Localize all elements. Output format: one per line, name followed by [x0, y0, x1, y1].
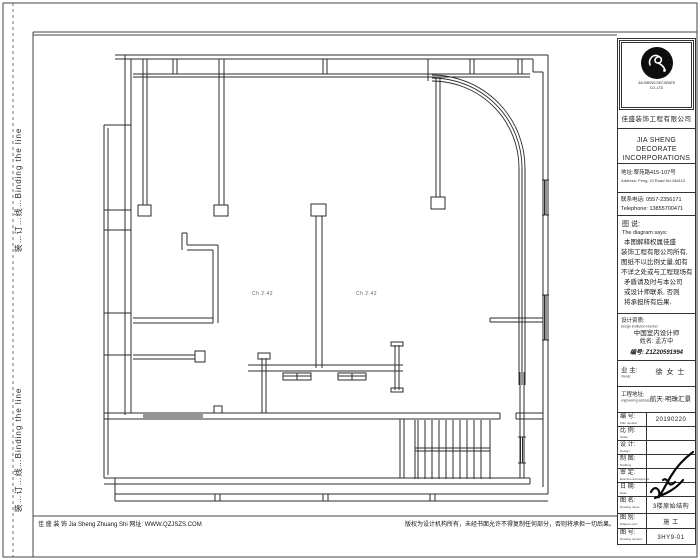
credential-name: 姓名: 孟方中 — [618, 338, 695, 347]
row-label-en: Date: — [620, 492, 640, 495]
logo-tagline-1: JIA SHENG DECORATE — [627, 80, 686, 84]
curved-wall — [432, 75, 525, 385]
notes-line: 或设计师联系, 否则 — [624, 288, 695, 298]
room-label-ch: Ch 2.42 — [252, 291, 273, 297]
row-label-en: Drafting: — [620, 464, 640, 467]
company-name-cn: 佳盛装饰工程有限公司 — [618, 113, 695, 123]
credential-org: 中国室内设计师 — [618, 329, 695, 338]
row-value — [647, 427, 695, 440]
notes-line: 图纸不以比例丈量,如有 — [621, 258, 695, 268]
notes-line: 本图解释权属佳盛 — [624, 238, 695, 248]
table-row: 图 别: Diagram sort: 施 工 — [618, 514, 695, 529]
floor-plan-linework — [0, 0, 700, 560]
notes-line: 将承担所有后果. — [624, 298, 695, 308]
phone-en: Telephone: 13855700471 — [621, 206, 695, 212]
binding-line-text-lower: 装…订…线…Binding the line — [13, 365, 27, 535]
notes-title-cn: 图 说: — [622, 219, 695, 229]
designer-signature — [645, 446, 699, 506]
table-row: 图 号: Drawing number: 3HY9-01 — [618, 529, 695, 544]
table-row: 比 例: Scale: — [618, 427, 695, 441]
owner-row: 业 主: Owner: 徐 女 士 — [618, 361, 695, 387]
plan-walls — [104, 55, 549, 501]
logo-frame: JIA SHENG DECORATE CO.,LTD — [621, 42, 692, 108]
notes-line: 不详之处或与工程现场有 — [621, 268, 695, 278]
row-label-en: Scale: — [620, 436, 640, 439]
owner-label-en: Owner: — [621, 375, 634, 379]
address-en: Address: Feng, Gl Road No.15#110 — [621, 178, 688, 183]
site-value: 航天·明珠汇景 — [648, 393, 693, 403]
row-label-en: Examine and approve: — [620, 478, 640, 481]
notes-section: 图 说: The diagram says: 本图解释权属佳盛 装饰工程有限公司… — [618, 216, 695, 314]
binding-line-text-upper: 装…订…线…Binding the line — [13, 105, 27, 275]
stairs-treads — [425, 420, 481, 479]
footer-company: 佳 盛 装 饰 Jia Sheng Zhuang Shi 网址: WWW.QZJ… — [38, 519, 202, 528]
phone-cn: 联系电话: 0557-2356171 — [621, 195, 695, 203]
credential-label-en: Design institution Number: — [621, 325, 680, 329]
row-value: 20190220 — [647, 413, 695, 426]
row-value: 3HY9-01 — [647, 529, 695, 544]
owner-label-cn: 业 主: — [621, 364, 638, 374]
table-row: 编 号: Plan number: 20190220 — [618, 413, 695, 427]
row-label-en: Drawing name: — [620, 506, 640, 509]
sheet-frame — [3, 3, 697, 557]
room-label-ch: Ch 2.42 — [356, 291, 377, 297]
company-logo-icon — [641, 47, 673, 79]
company-en-line1: JIA SHENG DECORATE — [618, 136, 695, 154]
notes-title-en: The diagram says: — [622, 230, 695, 236]
site-row: 工程地址: engineering address: 航天·明珠汇景 — [618, 387, 695, 413]
logo-section: JIA SHENG DECORATE CO.,LTD 佳盛装饰工程有限公司 — [618, 39, 695, 129]
company-en-line2: INCORPORATIONS — [618, 154, 695, 163]
notes-line: 装饰工程有限公司所有, — [621, 248, 695, 258]
row-label-en: Design: — [620, 450, 640, 453]
row-label-en: Diagram sort: — [620, 523, 640, 526]
address-section: 地址:翠苑路415-107号 Address: Feng, Gl Road No… — [618, 164, 695, 193]
row-label-en: Plan number: — [620, 422, 640, 425]
logo-tagline-2: CO.,LTD — [627, 85, 686, 89]
owner-value: 徐 女 士 — [648, 367, 693, 377]
drawing-sheet: 装…订…线…Binding the line 装…订…线…Binding the… — [0, 0, 700, 560]
row-label-en: Drawing number: — [620, 538, 640, 541]
company-name-en-section: JIA SHENG DECORATE INCORPORATIONS — [618, 129, 695, 164]
notes-line: 矛盾请及时与本公司 — [624, 278, 695, 288]
credential-section: 设计资质: Design institution Number: 中国室内设计师… — [618, 314, 695, 361]
credential-number: 编号: Z1Z20591994 — [618, 347, 695, 356]
row-value: 施 工 — [647, 514, 695, 528]
credential-label-cn: 设计资质: — [621, 316, 695, 324]
address-cn: 地址:翠苑路415-107号 — [621, 168, 693, 176]
phone-section: 联系电话: 0557-2356171 Telephone: 1385570047… — [618, 193, 695, 216]
site-label-en: engineering address: — [621, 399, 651, 403]
footer-copyright: 版权为设计机构所有，未经书面允许不得复制任何部分，否则将承担一切后果。 — [405, 519, 615, 528]
